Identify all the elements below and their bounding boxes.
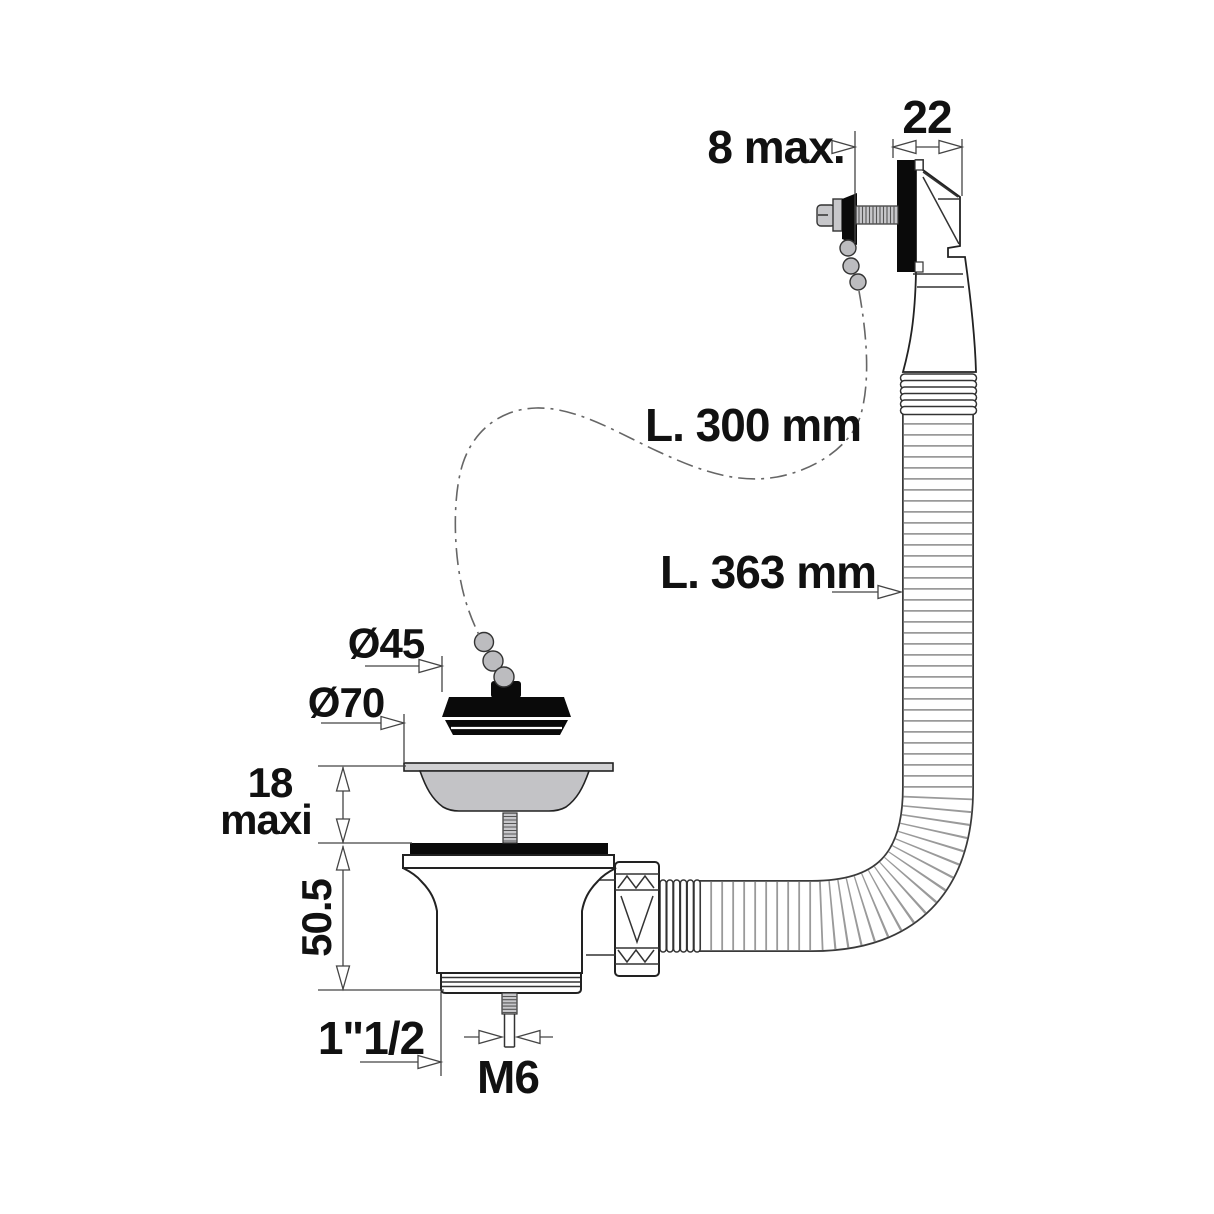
label-hose-length: L. 363 mm — [660, 546, 876, 598]
label-panel-thickness: 8 max. — [707, 121, 844, 173]
dim-grid-diameter: Ø70 — [308, 679, 404, 762]
label-overflow-width: 22 — [902, 91, 951, 143]
basket-cup — [420, 771, 589, 811]
bowl — [403, 868, 616, 973]
overflow-chain-beads — [840, 240, 866, 290]
rubber-plug — [442, 633, 571, 736]
hose-transition-rings — [660, 880, 700, 952]
label-plug-diameter: Ø45 — [348, 620, 425, 667]
sink-flange — [403, 855, 614, 868]
label-screw-thread: M6 — [477, 1051, 539, 1103]
strainer-basket — [404, 763, 613, 811]
overflow-fitting — [817, 160, 977, 415]
flexible-hose — [697, 412, 938, 916]
plug-cap — [442, 697, 571, 717]
drain-body — [403, 813, 616, 1047]
flare-ribs — [901, 374, 977, 415]
label-grid-diameter: Ø70 — [308, 679, 384, 726]
label-chain-length: L. 300 mm — [645, 399, 861, 451]
dim-outlet-thread: 1"1/2 — [318, 992, 441, 1076]
m6-screw-shank — [505, 1014, 515, 1047]
dim-hose-length: L. 363 mm — [660, 546, 901, 599]
label-deck-thickness-unit: maxi — [220, 796, 312, 843]
m6-screw — [502, 993, 517, 1047]
dim-screw-thread: M6 — [464, 1031, 553, 1104]
basket-screw — [503, 813, 517, 843]
bolt-collar — [833, 199, 842, 231]
technical-diagram: 22 8 max. L. 300 mm L. 363 mm Ø45 Ø70 — [0, 0, 1214, 1214]
bottom-collar — [441, 973, 581, 993]
drawing-canvas: 22 8 max. L. 300 mm L. 363 mm Ø45 Ø70 — [0, 0, 1214, 1214]
plug-chain-beads — [475, 633, 515, 688]
locknut — [615, 862, 659, 976]
plate-tab-top — [915, 160, 923, 170]
hose-body — [697, 412, 938, 916]
dim-deck-thickness: 18 maxi — [220, 759, 412, 843]
overflow-plate — [897, 160, 916, 272]
overflow-bolt — [817, 193, 898, 245]
rubber-gasket — [410, 843, 608, 854]
basket-flange — [404, 763, 613, 771]
label-body-height: 50.5 — [293, 878, 340, 956]
label-outlet-thread: 1"1/2 — [318, 1012, 424, 1064]
plate-tab-bottom — [915, 262, 923, 272]
